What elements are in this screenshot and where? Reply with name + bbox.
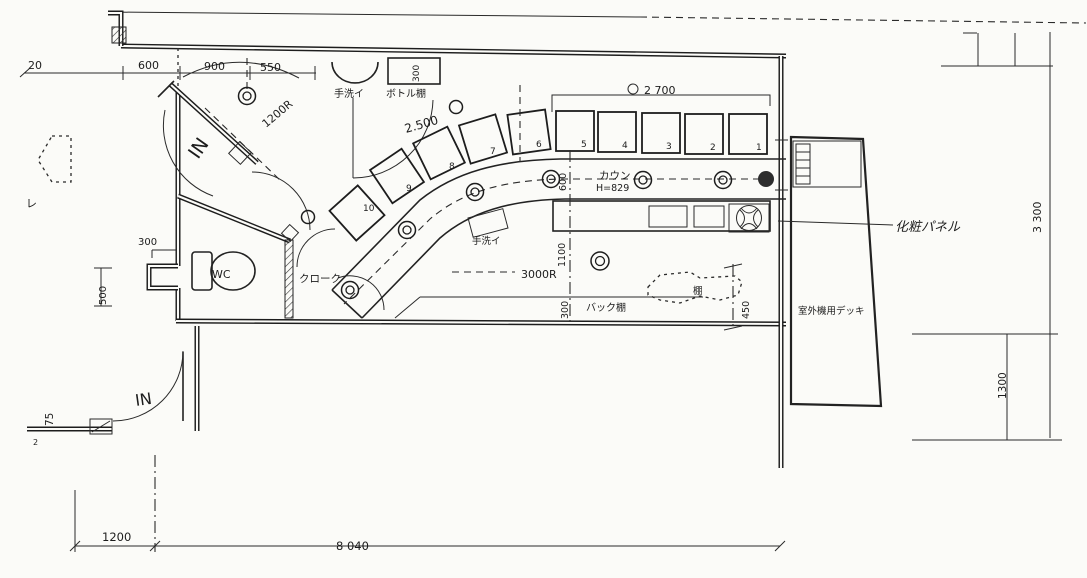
seat-4 <box>598 112 636 152</box>
label-outdoor-deck: 室外機用デッキ <box>798 305 865 317</box>
seat-number: 5 <box>581 140 587 150</box>
dim-3300: 3 300 <box>1031 202 1044 234</box>
dim-900: 900 <box>204 60 225 73</box>
downlight-filled <box>758 171 774 187</box>
seat-number: 9 <box>406 184 412 194</box>
deck-outline <box>791 137 881 406</box>
label-back-shelf: バック棚 <box>586 301 626 314</box>
column-circle <box>302 211 315 224</box>
downlight <box>467 184 484 201</box>
dim-2700: 2 700 <box>644 84 676 97</box>
label-in-bottom: IN <box>134 389 153 410</box>
seat-3 <box>642 113 680 153</box>
seat-6 <box>507 110 550 155</box>
seat-number: 3 <box>666 142 672 152</box>
seat-number: 1 <box>756 143 762 153</box>
ceiling-light <box>239 88 256 105</box>
column-circle <box>450 101 463 114</box>
downlight <box>635 172 652 189</box>
label-makeup-panel: 化粧パネル <box>895 220 961 235</box>
dashed-marker-shape <box>38 136 71 182</box>
outdoor-unit <box>793 141 861 187</box>
seat-number: 8 <box>449 162 455 172</box>
dim-circle-mark <box>628 84 638 94</box>
seat-7 <box>459 114 507 163</box>
seat-5 <box>556 111 594 151</box>
seat-number: 10 <box>363 204 375 214</box>
floor-plan-drawing: 1 2 3 4 5 6 7 8 9 10 <box>0 0 1087 578</box>
seat-number: 2 <box>710 143 716 153</box>
corridor-door-swing-arc <box>252 172 310 230</box>
dim-300-bottle: 300 <box>412 65 422 82</box>
dim-500: 500 <box>98 286 109 305</box>
bottom-dimension-line <box>70 455 785 552</box>
seat-8 <box>413 127 465 180</box>
dim-600-top: 600 <box>138 59 159 72</box>
toilet-tank <box>192 252 212 290</box>
seat-10 <box>329 185 384 240</box>
right-dimension-structure <box>912 32 1062 440</box>
label-cloak: クローク <box>299 273 341 285</box>
entry-arch <box>183 62 299 78</box>
dim-75: 75 <box>44 413 56 426</box>
dim-20: 20 <box>28 59 42 72</box>
outdoor-deck <box>791 137 881 406</box>
dim-300-col: 300 <box>560 301 571 319</box>
sink-basin <box>649 206 687 227</box>
mark-2: 2 <box>33 438 38 447</box>
dim-8040: 8 040 <box>336 539 369 553</box>
dim-1100: 1100 <box>557 243 568 267</box>
label-in-top: IN <box>184 134 213 163</box>
dim-450: 450 <box>741 301 752 319</box>
downlight <box>342 282 359 299</box>
wall-hatch-block <box>112 27 126 43</box>
downlight <box>591 252 609 270</box>
counter-centerline <box>344 179 772 304</box>
label-counter-height: H=829 <box>596 183 629 194</box>
outdoor-unit-grille <box>796 144 810 184</box>
kitchen-back-counter <box>395 201 770 318</box>
dim-300-wc: 300 <box>138 237 157 248</box>
makeup-panel-leader <box>778 221 893 225</box>
dim-3000r: 3000R <box>521 268 557 281</box>
door-swing-arc <box>113 351 183 421</box>
label-counter: カウン <box>599 170 631 182</box>
floor-plan-sheet: 1 2 3 4 5 6 7 8 9 10 <box>0 0 1087 578</box>
dim-600-col: 600 <box>558 173 569 191</box>
exhaust-fan <box>729 204 769 232</box>
downlight <box>399 222 416 239</box>
dim-1200r: 1200R <box>260 97 296 130</box>
seat-number: 6 <box>536 140 542 150</box>
seat-9 <box>370 149 424 203</box>
dim-1300: 1300 <box>997 372 1009 399</box>
handwash-basin <box>332 62 378 83</box>
label-wc: WC <box>212 268 231 281</box>
dim-1200-bottom: 1200 <box>102 530 131 544</box>
sink-basin <box>694 206 724 227</box>
counter-back-edge <box>362 199 786 318</box>
counter-seats: 1 2 3 4 5 6 7 8 9 10 <box>329 110 767 241</box>
label-bottle-shelf: ボトル棚 <box>386 87 426 100</box>
mark-re: レ <box>26 197 37 210</box>
seat-2 <box>685 114 723 154</box>
hatched-partition <box>285 240 293 318</box>
wall-end-cap <box>158 81 174 97</box>
site-boundary-lines <box>108 12 1086 23</box>
label-shelf: 棚 <box>693 285 703 297</box>
seat-number: 7 <box>490 147 496 157</box>
dim-550: 550 <box>260 61 281 74</box>
label-handwash-counter: 手洗イ <box>472 235 501 247</box>
downlight <box>715 172 732 189</box>
counter-handwash-sink <box>468 209 508 238</box>
seat-number: 4 <box>622 141 628 151</box>
label-handwash-top: 手洗イ <box>334 87 364 100</box>
